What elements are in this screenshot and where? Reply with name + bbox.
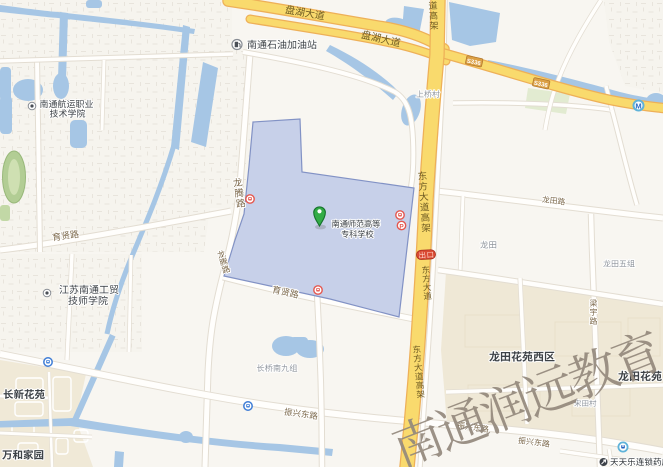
svg-text:M: M (635, 101, 641, 110)
svg-text:P: P (399, 223, 404, 230)
